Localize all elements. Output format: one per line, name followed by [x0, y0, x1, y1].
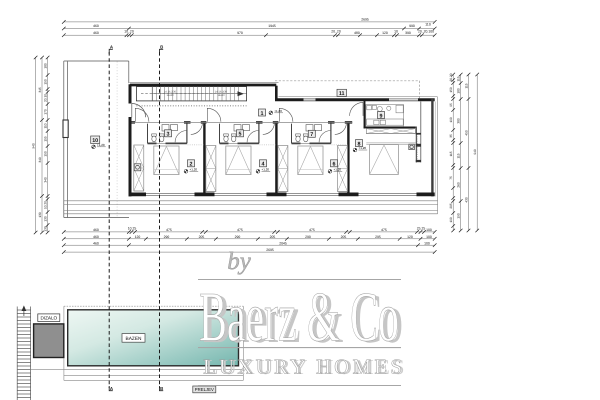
- svg-text:11: 11: [339, 91, 345, 97]
- svg-text:345: 345: [38, 87, 42, 93]
- svg-text:190: 190: [449, 217, 453, 223]
- svg-text:430: 430: [464, 197, 468, 203]
- svg-text:130: 130: [43, 216, 47, 222]
- svg-text:475: 475: [166, 228, 172, 232]
- svg-text:205: 205: [449, 203, 453, 209]
- svg-text:2695: 2695: [266, 248, 274, 252]
- svg-text:340: 340: [43, 177, 47, 183]
- svg-text:380: 380: [457, 118, 461, 124]
- svg-text:1945: 1945: [268, 24, 276, 28]
- svg-text:+1,20: +1,20: [262, 167, 270, 171]
- svg-text:20..20: 20..20: [331, 29, 341, 33]
- svg-text:115: 115: [457, 76, 461, 81]
- svg-text:150: 150: [449, 87, 453, 93]
- svg-text:460: 460: [93, 235, 99, 239]
- svg-text:155: 155: [43, 136, 47, 142]
- svg-text:+1,20: +1,20: [97, 143, 105, 147]
- svg-text:10.25: 10.25: [128, 227, 137, 231]
- svg-text:20.10: 20.10: [43, 94, 47, 102]
- svg-text:75: 75: [449, 176, 453, 180]
- svg-text:990: 990: [409, 24, 415, 28]
- svg-text:450: 450: [464, 130, 468, 136]
- svg-text:120: 120: [135, 235, 141, 239]
- svg-text:+1,20: +1,20: [359, 146, 367, 150]
- svg-text:10.20: 10.20: [43, 201, 47, 209]
- svg-text:150: 150: [43, 79, 47, 85]
- svg-text:10..20: 10..20: [124, 29, 134, 33]
- svg-text:PRELJEV: PRELJEV: [195, 387, 214, 392]
- svg-text:110: 110: [43, 123, 47, 128]
- svg-text:205: 205: [341, 235, 347, 239]
- svg-text:2695: 2695: [361, 17, 369, 21]
- svg-text:460: 460: [93, 241, 99, 245]
- svg-text:130: 130: [38, 212, 42, 218]
- svg-text:295: 295: [375, 235, 381, 239]
- svg-text:7: 7: [310, 132, 313, 138]
- svg-text:120: 120: [382, 31, 388, 35]
- svg-text:180: 180: [457, 88, 461, 94]
- svg-text:480: 480: [354, 31, 360, 35]
- svg-text:1: 1: [261, 111, 264, 117]
- svg-text:110: 110: [425, 23, 431, 27]
- svg-text:460: 460: [93, 24, 99, 28]
- svg-text:475: 475: [237, 228, 243, 232]
- svg-text:B: B: [160, 44, 163, 49]
- svg-text:+1,20: +1,20: [334, 167, 342, 171]
- svg-text:3: 3: [167, 132, 170, 138]
- svg-text:25.25: 25.25: [417, 227, 426, 231]
- svg-text:205: 205: [270, 235, 276, 239]
- svg-text:390: 390: [405, 31, 411, 35]
- svg-text:460: 460: [93, 228, 99, 232]
- svg-text:115: 115: [464, 83, 468, 88]
- svg-text:20..20.100: 20..20.100: [418, 29, 434, 33]
- svg-text:970: 970: [237, 31, 243, 35]
- svg-text:115: 115: [449, 151, 453, 156]
- svg-text:120: 120: [407, 235, 413, 239]
- svg-text:290: 290: [235, 235, 241, 239]
- svg-text:130: 130: [43, 226, 47, 232]
- svg-text:14x30: 14x30: [166, 94, 174, 97]
- svg-text:180: 180: [43, 63, 47, 69]
- svg-text:by: by: [227, 248, 252, 275]
- svg-text:9: 9: [380, 113, 383, 119]
- svg-text:205: 205: [199, 235, 205, 239]
- svg-text:+1,20: +1,20: [190, 167, 198, 171]
- svg-text:14x30: 14x30: [217, 94, 225, 97]
- svg-text:10: 10: [394, 30, 398, 34]
- svg-text:190: 190: [449, 117, 453, 123]
- svg-text:940: 940: [31, 143, 35, 149]
- svg-text:290: 290: [164, 235, 170, 239]
- svg-text:95: 95: [449, 103, 453, 107]
- svg-text:115: 115: [457, 153, 461, 158]
- svg-text:100: 100: [426, 228, 432, 232]
- svg-text:100: 100: [426, 235, 432, 239]
- svg-text:2045: 2045: [279, 241, 287, 245]
- svg-text:340: 340: [38, 157, 42, 163]
- svg-text:5: 5: [239, 132, 242, 138]
- svg-text:190: 190: [457, 213, 461, 219]
- svg-text:B: B: [160, 386, 163, 391]
- svg-text:475: 475: [309, 228, 315, 232]
- svg-text:460: 460: [93, 31, 99, 35]
- svg-text:940: 940: [473, 149, 477, 155]
- svg-text:BAZEN: BAZEN: [126, 336, 143, 342]
- svg-text:260: 260: [457, 182, 461, 188]
- svg-text:+1,20: +1,20: [274, 109, 282, 113]
- svg-text:475: 475: [381, 228, 387, 232]
- svg-text:20.20: 20.20: [449, 73, 453, 81]
- svg-text:290: 290: [305, 235, 311, 239]
- svg-text:35: 35: [449, 134, 453, 138]
- svg-text:DIZALO: DIZALO: [41, 316, 58, 321]
- svg-text:Baerz & Co: Baerz & Co: [199, 279, 399, 357]
- svg-text:170: 170: [43, 109, 47, 115]
- svg-text:150: 150: [43, 151, 47, 157]
- svg-text:100: 100: [424, 241, 430, 245]
